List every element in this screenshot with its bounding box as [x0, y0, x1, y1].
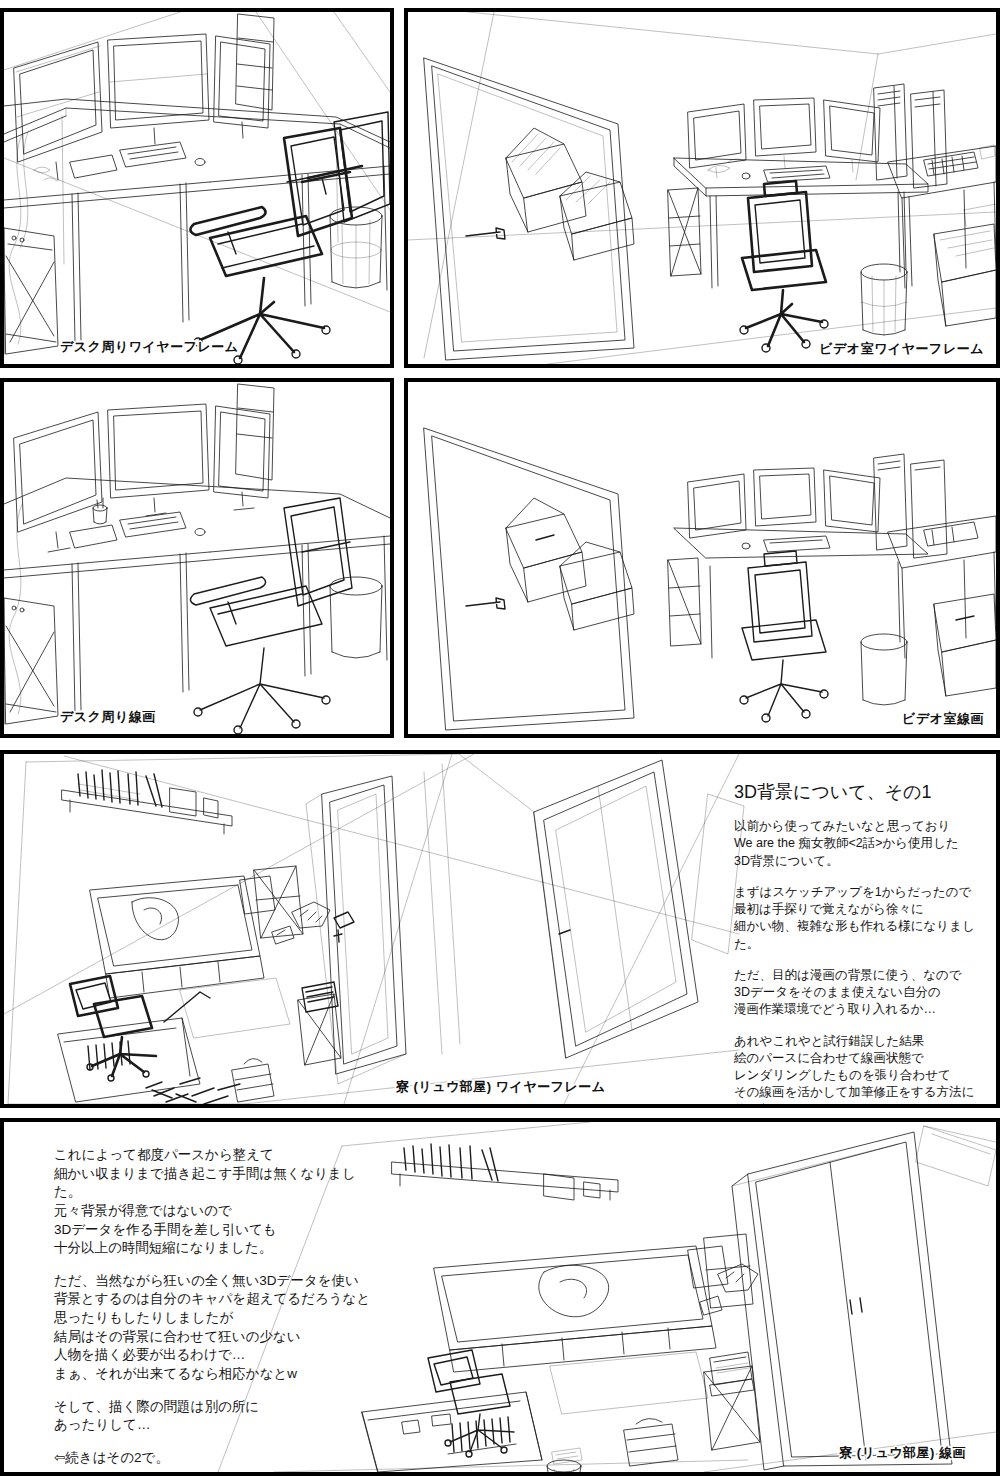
window-corner [916, 1126, 996, 1186]
open-door [306, 764, 460, 1084]
desk-lineart-drawing [4, 382, 390, 734]
study-desk [362, 1392, 542, 1472]
panel-desk-wireframe: デスク周りワイヤーフレーム [0, 8, 394, 368]
article-paragraph: ただ、目的は漫画の背景に使う、なので 3Dデータをそのまま使えない自分の 漫画作… [734, 967, 992, 1019]
office-chair [740, 181, 828, 352]
article-paragraph: ⇦続きはその2で。 [54, 1449, 376, 1468]
monitors [14, 14, 274, 180]
artbook-page: デスク周りワイヤーフレーム [0, 0, 1000, 1476]
scattered-clothes [272, 902, 354, 944]
bookshelf [62, 770, 232, 834]
wardrobe [732, 1132, 952, 1470]
pc-towers [874, 454, 947, 558]
trash-bin [330, 577, 382, 658]
article-part2: これによって都度パースから整えて 細かい収まりまで描き起こす手間は無くなりました… [54, 1146, 376, 1476]
trash-bin [861, 634, 907, 705]
article-part1: 3D背景について、その1 以前から使ってみたいなと思っており We are th… [734, 780, 992, 1108]
desk-chair [70, 976, 156, 1081]
article-paragraph: あれやこれやと試行錯誤した結果 絵のパースに合わせて線画状態で レンダリングした… [734, 1033, 992, 1109]
article-paragraph: これによって都度パースから整えて 細かい収まりまで描き起こす手間は無くなりました… [54, 1146, 376, 1258]
stool [547, 1460, 581, 1472]
caption-dorm-wireframe: 寮 (リュウ部屋) ワイヤーフレーム [396, 1078, 606, 1096]
panel-dorm-wireframe: 3D背景について、その1 以前から使ってみたいなと思っており We are th… [0, 750, 1000, 1108]
caption-video-wireframe: ビデオ室ワイヤーフレーム [819, 340, 984, 358]
perspective-guides [408, 12, 996, 364]
caption-desk-wireframe: デスク周りワイヤーフレーム [60, 338, 239, 356]
caption-video-lineart: ビデオ室線画 [902, 710, 984, 728]
bookshelf [392, 1144, 618, 1200]
article-title: 3D背景について、その1 [734, 780, 992, 804]
window [534, 760, 744, 1058]
panel-video-lineart: ビデオ室線画 [404, 378, 1000, 738]
panel-dorm-lineart: これによって都度パースから整えて 細かい収まりまで描き起こす手間は無くなりました… [0, 1118, 1000, 1476]
pc-towers [874, 84, 947, 188]
perspective-guides [4, 12, 390, 312]
caption-desk-lineart: デスク周り線画 [60, 708, 156, 726]
pc-tower [4, 228, 58, 354]
article-paragraph: そして、描く際の問題は別の所に あったりして… [54, 1398, 376, 1435]
panel-desk-lineart: デスク周り線画 [0, 378, 394, 738]
article-paragraph: ただ、当然ながら狂いの全く無い3Dデータを使い 背景とするのは自分のキャパを超え… [54, 1272, 376, 1384]
perspective-guides [4, 754, 739, 1104]
desk-wireframe-drawing [4, 12, 390, 364]
video-room-wireframe-drawing [408, 12, 996, 364]
bed [90, 866, 303, 998]
desk [4, 99, 390, 344]
caption-dorm-lineart: 寮 (リュウ部屋) 線画 [839, 1444, 966, 1462]
door [424, 58, 634, 360]
desk [4, 478, 390, 714]
trash-bin [861, 264, 907, 336]
office-chair [190, 498, 352, 734]
pc-tower [4, 598, 58, 724]
laundry-basket [624, 1418, 678, 1466]
office-chair [740, 551, 828, 722]
laptop-stand [704, 1352, 760, 1450]
office-chair [190, 128, 352, 364]
bed [434, 1234, 753, 1372]
article-paragraph: まずはスケッチアップを1からだったので 最初は手探りで覚えながら徐々に 細かい物… [734, 884, 992, 953]
panel-video-wireframe: ビデオ室ワイヤーフレーム [404, 8, 1000, 368]
video-room-lineart-drawing [408, 382, 996, 734]
laundry-basket [232, 1058, 274, 1102]
scattered-clothes [700, 1264, 758, 1315]
door [424, 428, 634, 730]
name-sticker [552, 1448, 582, 1464]
side-table [888, 516, 996, 658]
article-paragraph: 以前から使ってみたいなと思っており We are the 痴女教師<2話>から使… [734, 818, 992, 870]
